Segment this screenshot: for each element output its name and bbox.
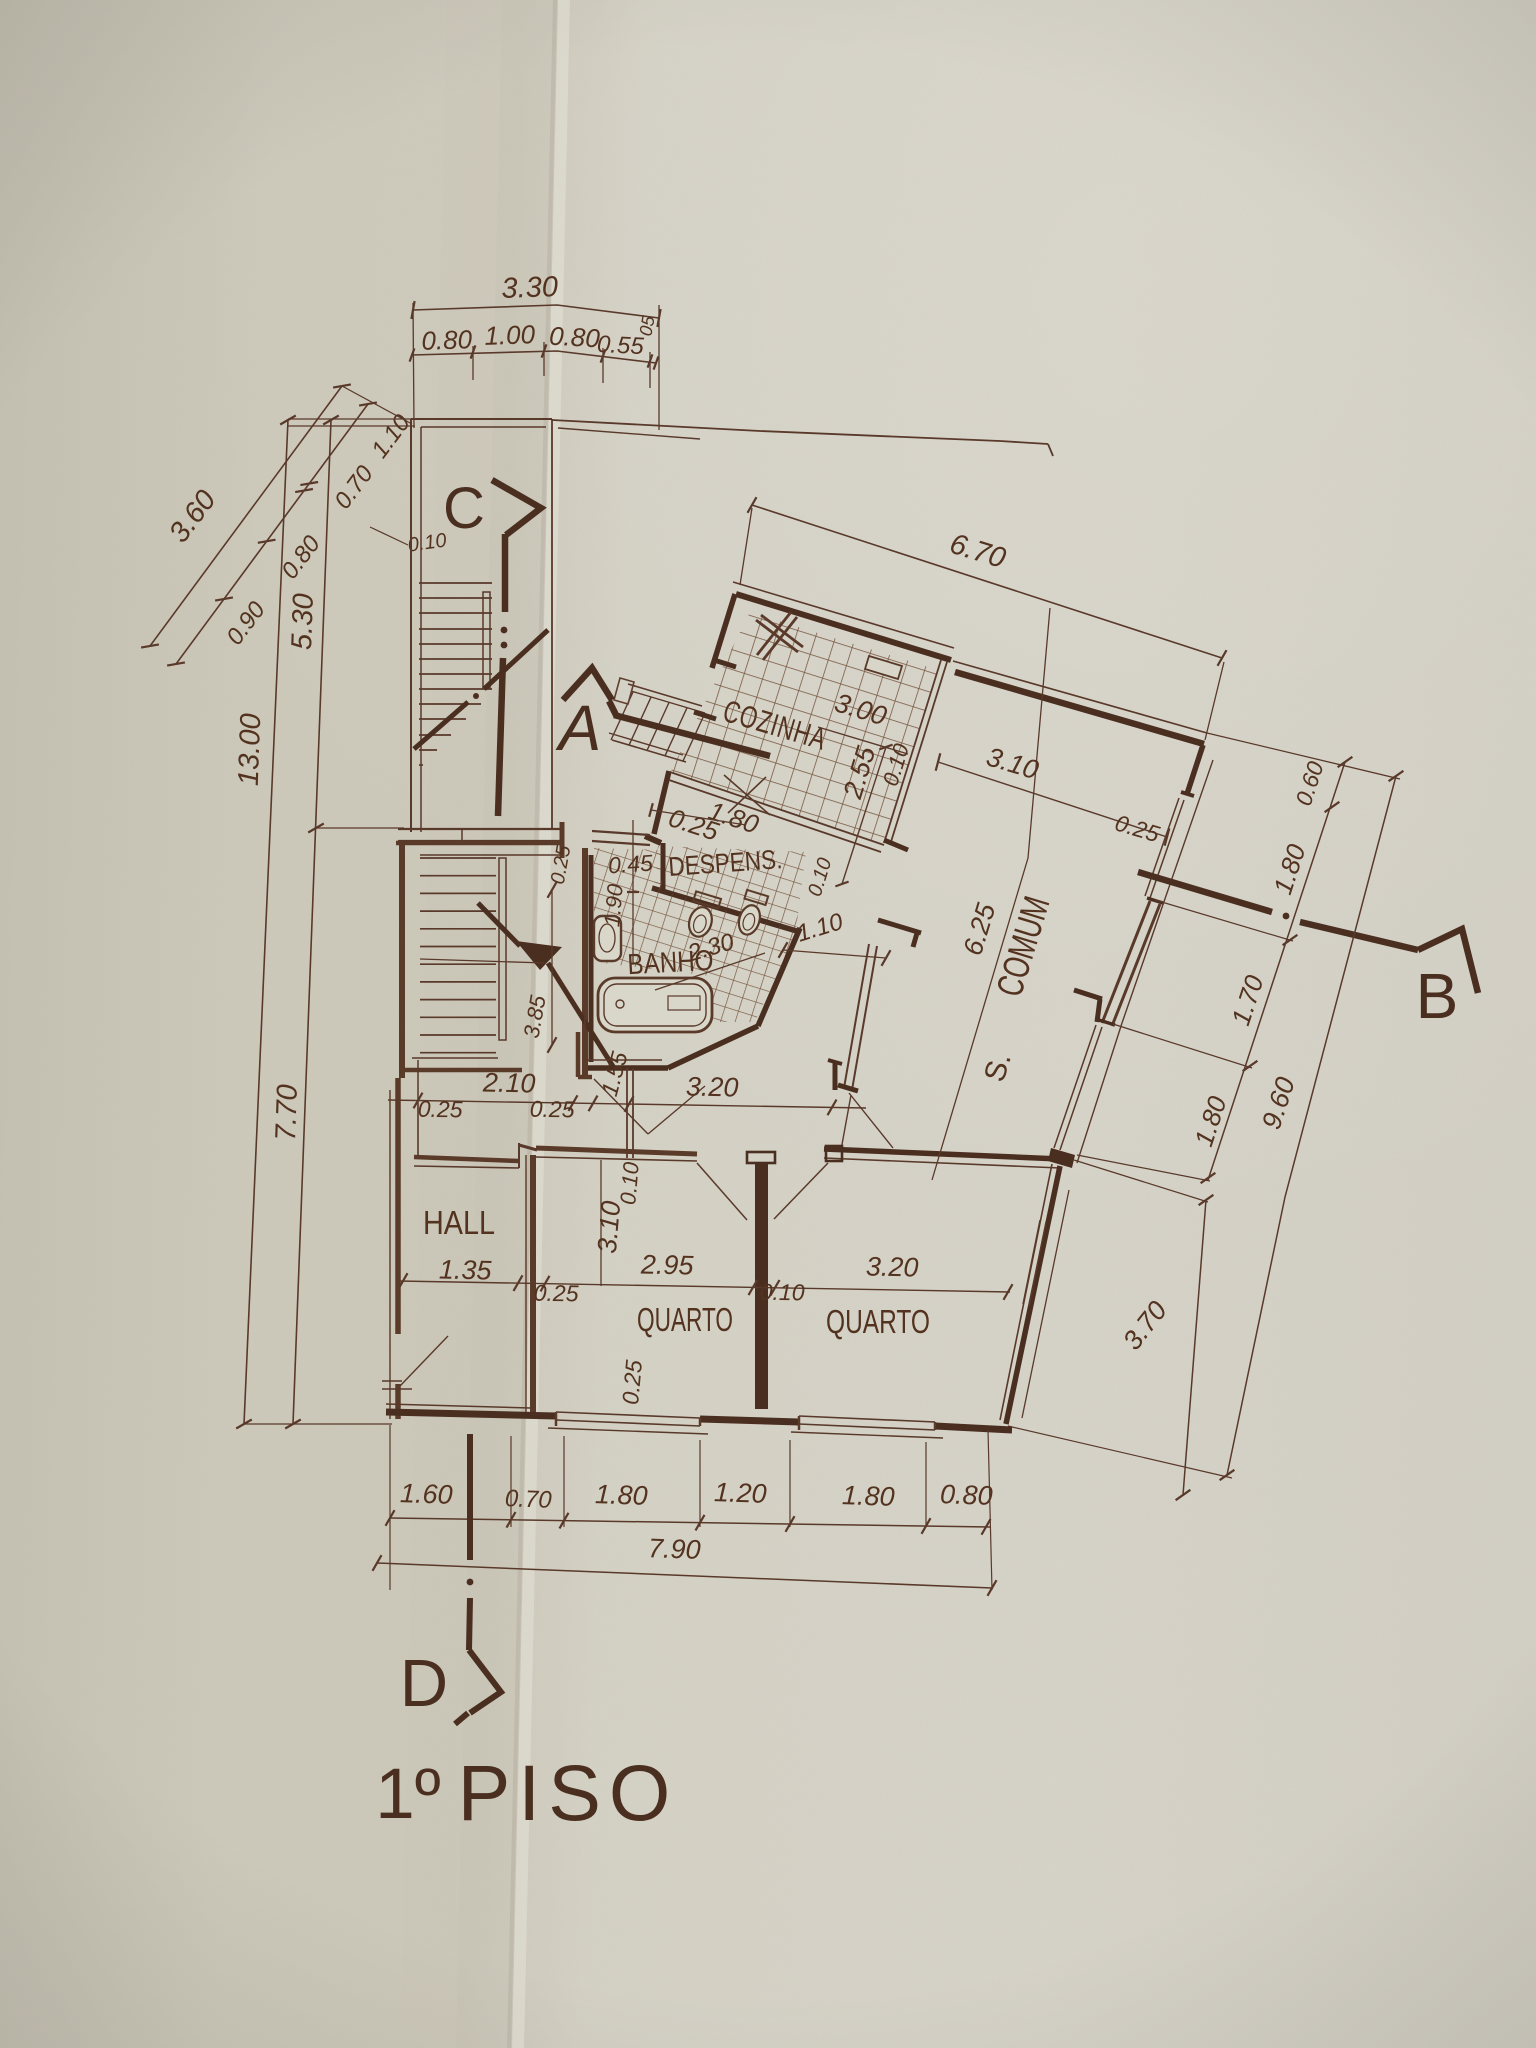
- svg-text:5.30: 5.30: [286, 593, 320, 651]
- svg-text:1.20: 1.20: [714, 1477, 768, 1509]
- svg-text:3.30: 3.30: [501, 271, 559, 305]
- svg-text:7.70: 7.70: [270, 1084, 304, 1142]
- svg-text:QUARTO: QUARTO: [637, 1301, 733, 1338]
- svg-text:2.95: 2.95: [640, 1250, 695, 1281]
- svg-text:13.00: 13.00: [233, 713, 268, 787]
- svg-text:1.80: 1.80: [842, 1480, 896, 1512]
- svg-text:A: A: [555, 692, 602, 764]
- svg-text:3.20: 3.20: [866, 1252, 919, 1283]
- svg-text:0.80: 0.80: [421, 324, 473, 356]
- svg-text:0.45: 0.45: [607, 849, 654, 878]
- svg-text:0.25: 0.25: [418, 1096, 463, 1123]
- svg-text:0.80: 0.80: [940, 1479, 994, 1511]
- svg-text:2.10: 2.10: [482, 1068, 536, 1099]
- svg-text:0.10: 0.10: [760, 1279, 805, 1306]
- svg-text:1.35: 1.35: [439, 1255, 493, 1286]
- svg-text:1º: 1º: [375, 1755, 440, 1834]
- svg-text:3.20: 3.20: [686, 1072, 739, 1103]
- svg-text:1.60: 1.60: [400, 1478, 454, 1510]
- svg-text:0.80: 0.80: [548, 321, 601, 354]
- svg-text:1.00: 1.00: [484, 319, 536, 351]
- svg-text:0.25: 0.25: [534, 1280, 579, 1307]
- svg-text:D: D: [400, 1646, 448, 1721]
- svg-text:3.10: 3.10: [592, 1200, 626, 1255]
- svg-text:C: C: [443, 476, 485, 541]
- svg-text:0.10: 0.10: [615, 1160, 644, 1206]
- svg-text:QUARTO: QUARTO: [826, 1303, 930, 1340]
- svg-text:1.80: 1.80: [595, 1479, 649, 1511]
- svg-text:7.90: 7.90: [648, 1533, 702, 1565]
- svg-text:HALL: HALL: [423, 1204, 495, 1241]
- svg-text:0.70: 0.70: [504, 1485, 552, 1514]
- svg-text:PISO: PISO: [458, 1748, 679, 1837]
- svg-text:B: B: [1416, 960, 1459, 1032]
- svg-text:0.25: 0.25: [530, 1096, 575, 1123]
- svg-text:0.25: 0.25: [617, 1359, 647, 1406]
- svg-text:1.90: 1.90: [599, 882, 628, 928]
